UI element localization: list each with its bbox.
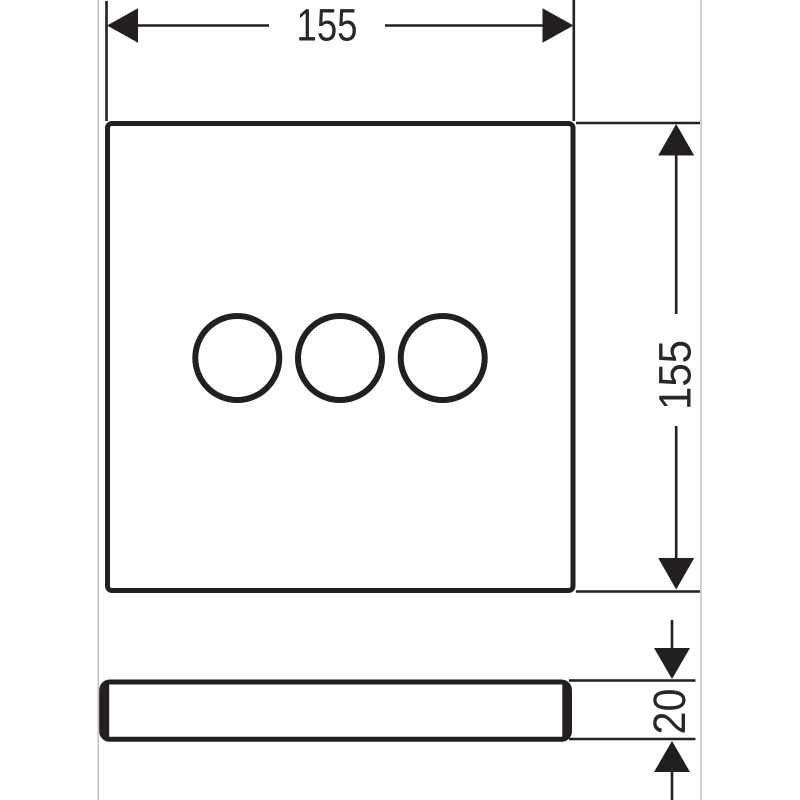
svg-text:20: 20 (644, 689, 695, 735)
svg-text:155: 155 (650, 340, 701, 410)
svg-text:155: 155 (297, 0, 358, 51)
